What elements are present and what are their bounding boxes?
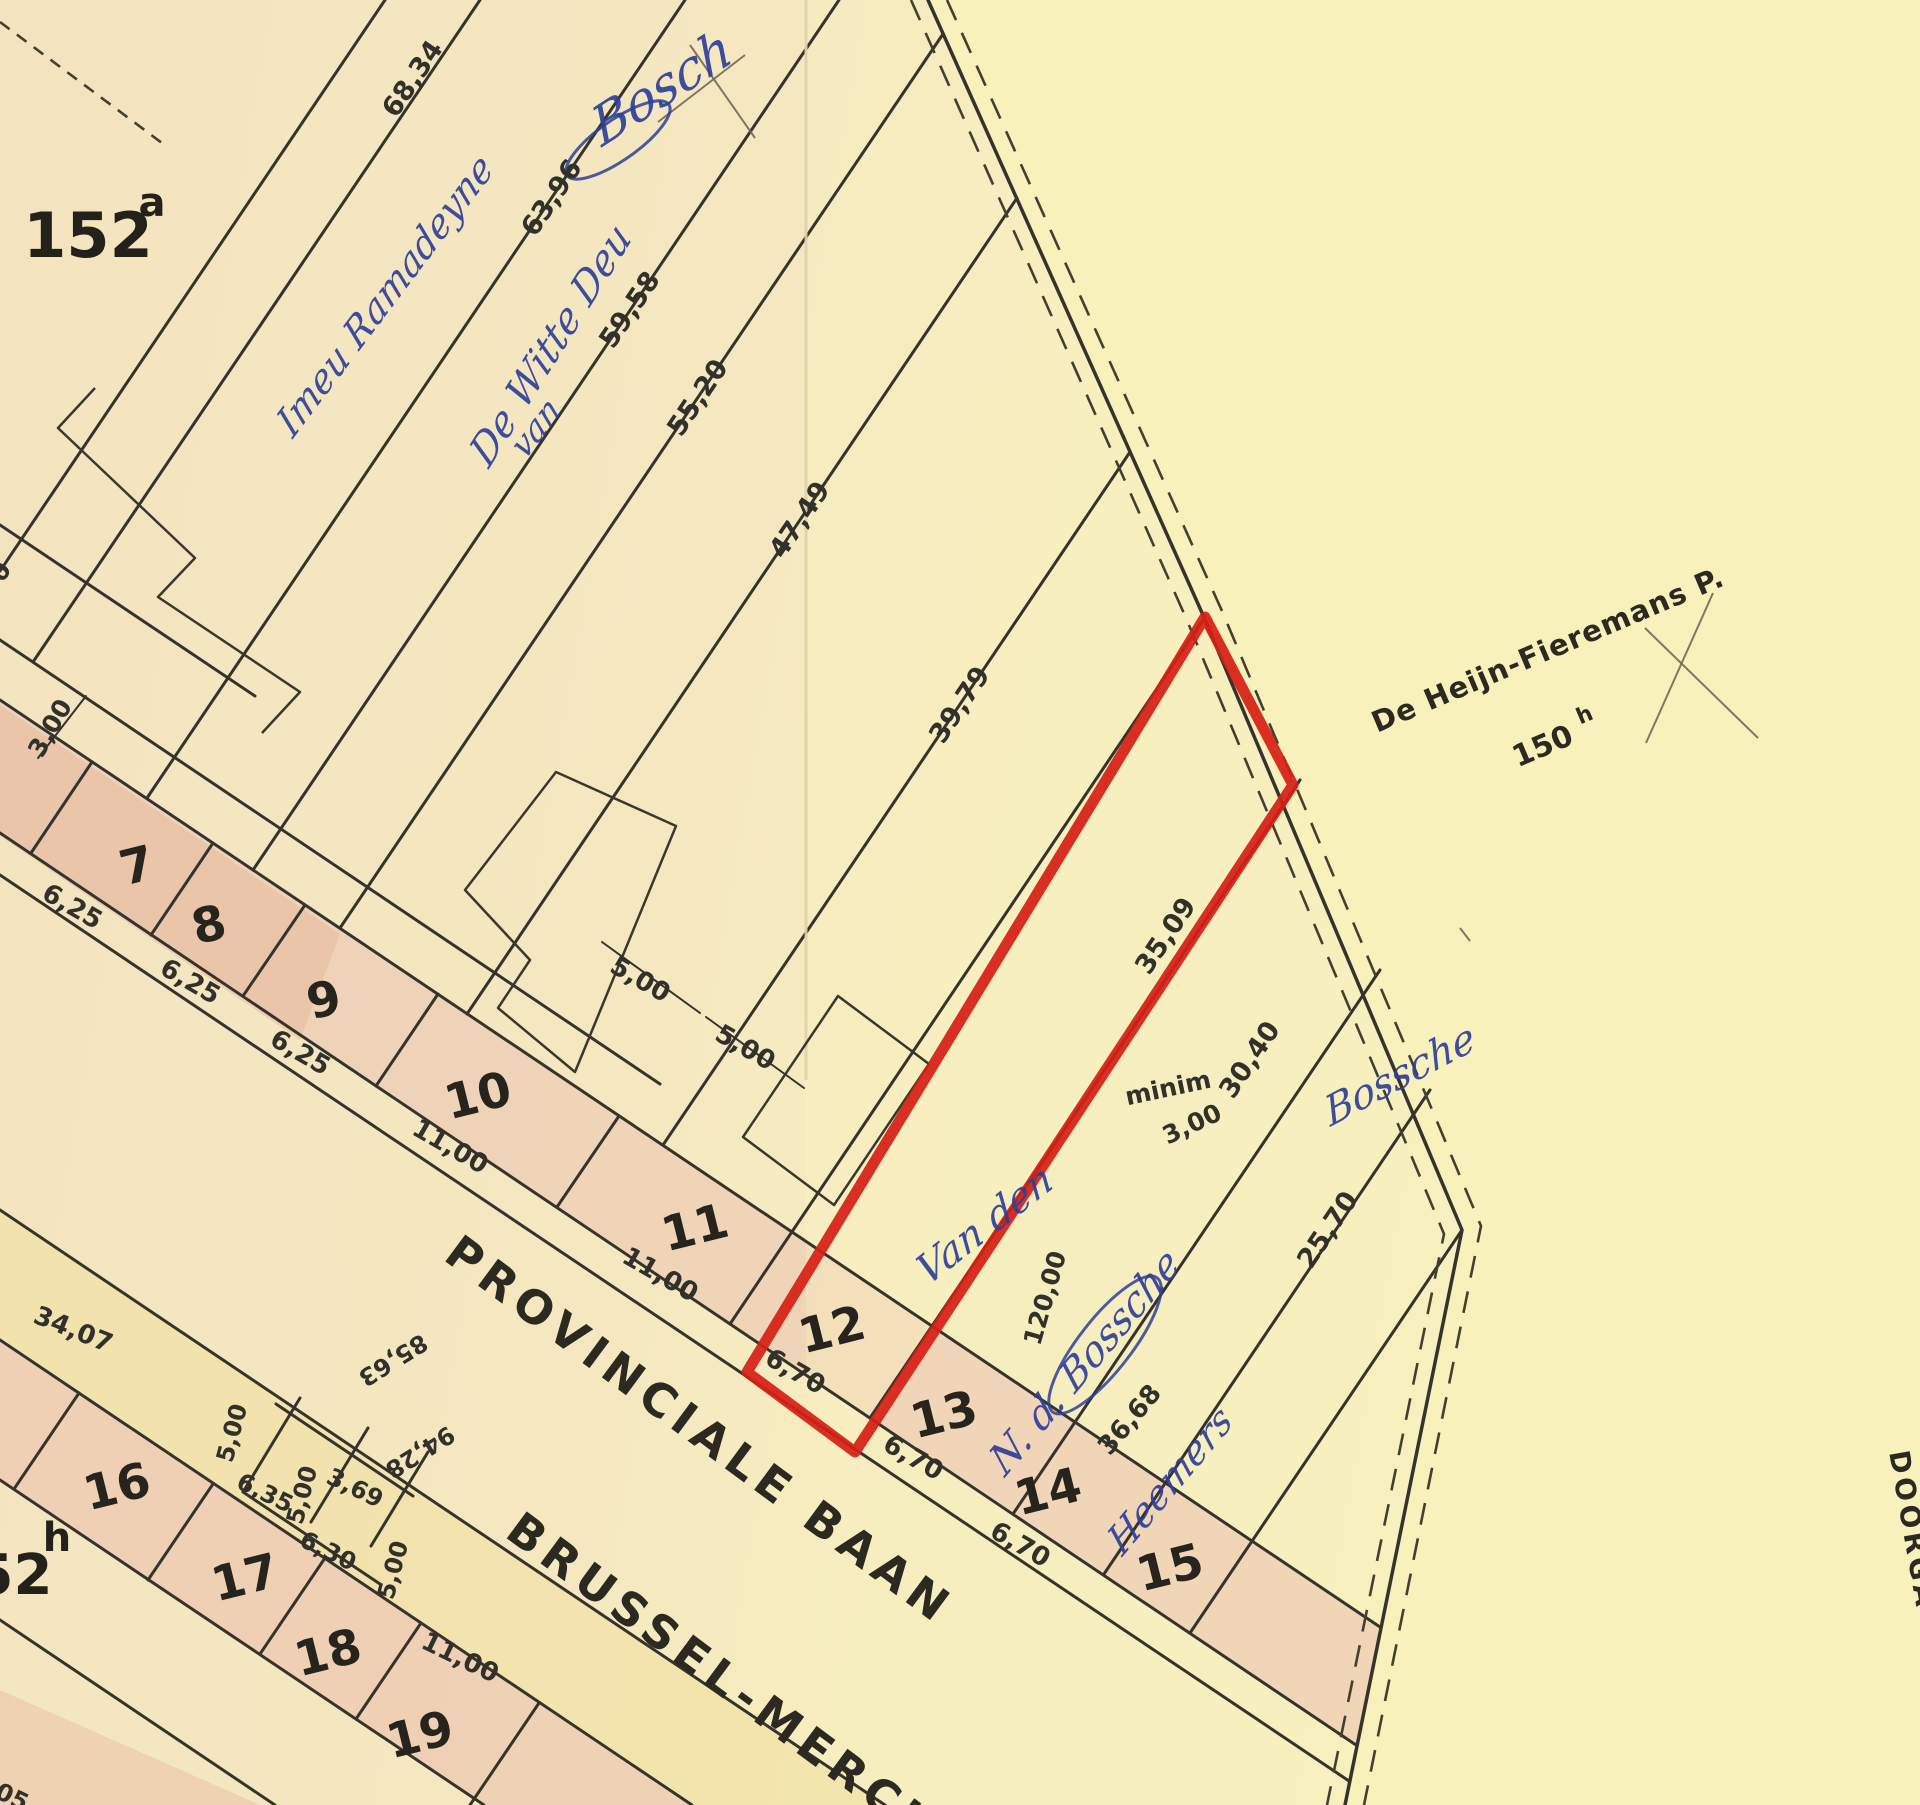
plot-13: 13 — [906, 1384, 982, 1447]
dim-35-09: 35,09 — [1131, 893, 1201, 979]
ink-signature-7: N. d. Bossche — [984, 1240, 1186, 1483]
street-provinciale-baan: PROVINCIALE BAAN — [438, 1228, 962, 1633]
dim-68-34: 68,34 — [378, 36, 448, 122]
dim-5-00-b: 5,00 — [711, 1021, 780, 1076]
parcel-152h-sup: h — [43, 1518, 71, 1558]
dim-6-25-b: 6,25 — [156, 955, 225, 1010]
dim-120-00: 120,00 — [1020, 1248, 1071, 1348]
dim-55-20: 55,20 — [663, 355, 733, 441]
plot-19: 19 — [382, 1704, 458, 1767]
street-doorgang: DOORGA — [1884, 1448, 1920, 1611]
plot-8: 8 — [187, 898, 231, 953]
plot-9: 9 — [302, 973, 346, 1028]
dim-39-79: 39,79 — [925, 662, 995, 748]
map-labels-layer: 152a152hDe Heijn-Fieremans P.150h68,3463… — [0, 0, 1920, 1805]
dim-25-70: 25,70 — [1293, 1187, 1363, 1273]
dim-5-00-e: 5,00 — [374, 1538, 413, 1601]
plot-7: 7 — [115, 839, 159, 894]
dim-30-40: 30,40 — [1215, 1017, 1285, 1103]
parcel-152a-sup: a — [139, 183, 166, 223]
dim-63-96: 63,96 — [517, 155, 587, 241]
dim-34-07: 34,07 — [30, 1303, 116, 1358]
cadastral-map-scan: 152a152hDe Heijn-Fieremans P.150h68,3463… — [0, 0, 1920, 1805]
dim-85-63: 85,63 — [354, 1330, 431, 1391]
area-150-sup: h — [1573, 703, 1596, 729]
dim-6-25-a: 6,25 — [38, 880, 107, 935]
dim-11-00-c: 11,00 — [417, 1628, 502, 1687]
dim-3-00-left: 3,00 — [24, 695, 76, 761]
parcel-152a-number: 152 — [23, 205, 152, 267]
dim-3-00-clipped: 3,00 — [0, 557, 16, 622]
plot-17: 17 — [207, 1547, 283, 1610]
plot-10: 10 — [440, 1065, 516, 1128]
dim-6-70-c: 6,70 — [986, 1518, 1055, 1573]
dim-6-25-c: 6,25 — [266, 1026, 335, 1081]
plot-16: 16 — [79, 1456, 155, 1519]
dim-3-69: 3,69 — [323, 1464, 387, 1512]
owner-label: De Heijn-Fieremans P. — [1368, 563, 1729, 738]
ink-signature-1: Imeu Ramadeyne — [271, 146, 499, 444]
dim-5-00-a: 5,00 — [606, 953, 675, 1008]
note-minim-value: 3,00 — [1159, 1100, 1225, 1149]
dim-05-clipped: 05 — [0, 1779, 32, 1805]
dim-6-35: 6,35 — [233, 1469, 297, 1517]
dim-47-49: 47,49 — [765, 477, 835, 563]
ink-signature-6: Bossche — [1321, 1016, 1479, 1133]
area-150: 150 — [1508, 721, 1577, 773]
plot-18: 18 — [290, 1622, 366, 1685]
dim-94-28: 94,28 — [381, 1422, 458, 1483]
plot-12: 12 — [794, 1299, 870, 1362]
plot-11: 11 — [657, 1197, 733, 1260]
dim-5-00-c: 5,00 — [213, 1401, 252, 1464]
dim-36-68: 36,68 — [1094, 1380, 1167, 1460]
dim-6-30: 6,30 — [296, 1527, 360, 1575]
ink-signature-4: Bosch — [586, 20, 738, 156]
note-minim: minim — [1123, 1067, 1213, 1110]
